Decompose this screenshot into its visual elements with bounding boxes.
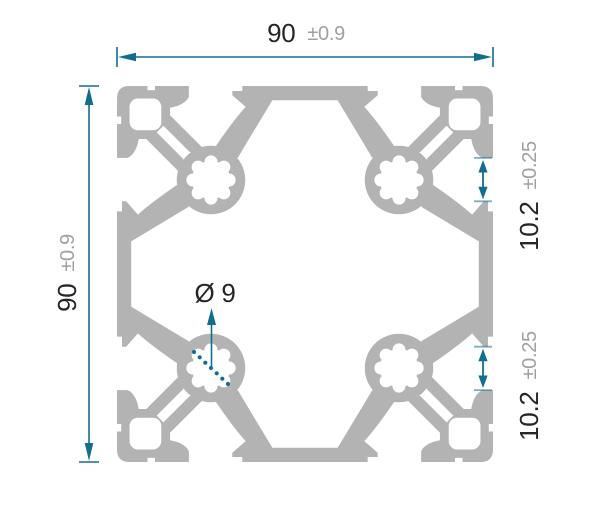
slot-bottom-tolerance: ±0.25 [519,331,541,379]
down-arrowhead-icon [478,376,487,389]
down-arrowhead-icon [478,187,487,200]
bore-dimension-label: Ø 9 [194,280,235,306]
up-arrowhead-icon [478,349,487,362]
slot-bottom-value: 10.2 [514,391,544,440]
width-dimension-label: 90 ±0.9 [267,20,345,46]
slot-dimension-bottom [474,347,492,390]
up-arrowhead-icon [478,160,487,173]
slot-dimension-top-label: 10.2 ±0.25 [516,141,542,251]
slot-dimension-bottom-label: 10.2 ±0.25 [516,331,542,441]
profile-cross-section [117,86,493,462]
up-arrowhead-icon [85,87,94,105]
technical-drawing-canvas: 90 ±0.9 90 ±0.9 10.2 ±0.25 10.2 ±0.25 Ø … [0,0,602,528]
height-value: 90 [52,284,82,312]
slot-dimension-top [474,158,492,201]
height-tolerance: ±0.9 [57,234,79,272]
height-dimension-label: 90 ±0.9 [54,234,80,312]
right-arrowhead-icon [474,53,492,62]
bore-value: Ø 9 [194,278,235,308]
height-dimension-line [79,86,99,462]
slot-top-value: 10.2 [514,201,544,250]
up-arrowhead-icon [207,308,216,325]
profile-drawing-svg [0,0,602,528]
left-arrowhead-icon [118,53,136,62]
width-dimension-line [117,47,493,67]
down-arrowhead-icon [85,443,94,461]
width-value: 90 [267,18,295,48]
slot-top-tolerance: ±0.25 [519,141,541,189]
width-tolerance: ±0.9 [307,23,345,45]
